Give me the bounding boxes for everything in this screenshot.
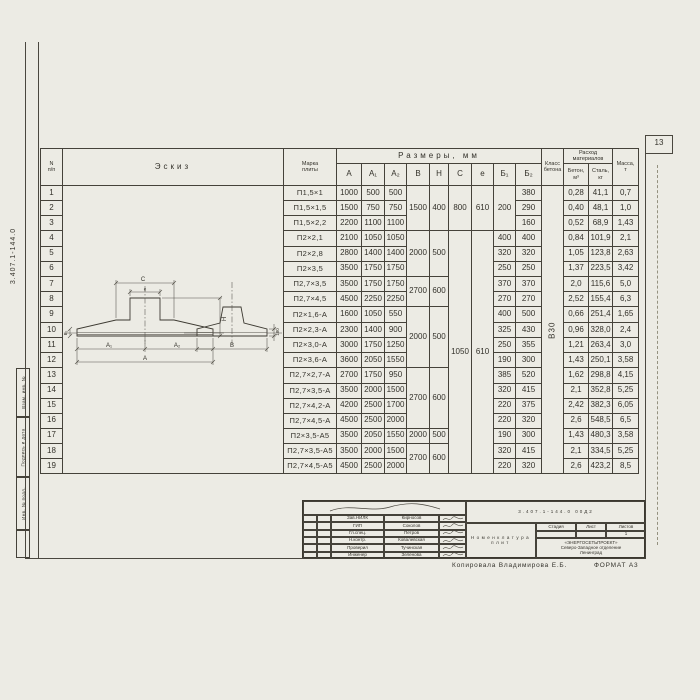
cell-B: 2000 [407, 428, 430, 443]
cell-mass: 3,58 [613, 428, 639, 443]
cell-n: 11 [41, 338, 63, 353]
sig-col-a [303, 537, 317, 544]
copied-by-line: Копировала Владимирова Е.Б. [452, 562, 567, 569]
cell-beton: 2,1 [564, 443, 589, 459]
sig-col-a [303, 522, 317, 529]
cell-A2: 1500 [385, 443, 407, 459]
cell-mass: 1,43 [613, 216, 639, 231]
cell-steel: 334,5 [589, 443, 613, 459]
cell-steel: 155,4 [589, 292, 613, 307]
header-mark: Маркаплиты [284, 149, 337, 186]
cell-steel: 68,9 [589, 216, 613, 231]
person-role: Гл.спец. [331, 530, 384, 537]
cell-beton: 0,84 [564, 231, 589, 247]
cell-A1: 1750 [362, 261, 385, 276]
drawing-sheet: 13 3.407.1-144.0 Взам. инв. № Подпись и … [0, 0, 700, 700]
cell-mass: 5,0 [613, 276, 639, 292]
person-role: Проверил [331, 544, 384, 551]
cell-beton: 1,21 [564, 338, 589, 353]
header-col-A: А [337, 164, 362, 186]
cell-b1: 400 [494, 231, 516, 247]
cell-b2: 400 [516, 231, 542, 247]
cell-steel: 115,6 [589, 276, 613, 292]
dim-label-c: С [141, 277, 146, 283]
frame-line-right [645, 135, 646, 558]
signature-scribble [442, 523, 464, 529]
cell-mark: П2×2,8 [284, 246, 337, 261]
cell-b1: 320 [494, 443, 516, 459]
cell-b1: 190 [494, 353, 516, 368]
person-name: Петров [384, 530, 439, 537]
person-signature [439, 544, 466, 551]
cell-A2: 1400 [385, 246, 407, 261]
stamp-inv-podl: Инв. № подл. [16, 477, 30, 530]
sig-col-a [303, 552, 317, 559]
header-sizes: Размеры, мм [337, 149, 542, 164]
header-concrete: Бетон,м³ [564, 164, 589, 186]
header-col-B: В [407, 164, 430, 186]
cell-n: 5 [41, 246, 63, 261]
sig-col-b [317, 522, 331, 529]
cell-A1: 1750 [362, 276, 385, 292]
sketch-cell: С е А₁ А₂ А Н Б₂ В [63, 186, 284, 474]
cell-n: 13 [41, 368, 63, 384]
cell-b1: 250 [494, 261, 516, 276]
cell-b1: 385 [494, 368, 516, 384]
cell-A1: 1050 [362, 231, 385, 247]
dim-label-a2: А₂ [174, 343, 181, 349]
cell-A2: 1100 [385, 216, 407, 231]
cell-A1: 1100 [362, 216, 385, 231]
person-signature [439, 522, 466, 529]
header-col-b1: Б₁ [494, 164, 516, 186]
person-role: ГИП [331, 522, 384, 529]
person-name: Соколов [384, 522, 439, 529]
sheets-label: Листов [606, 523, 646, 531]
cell-mass: 2,4 [613, 323, 639, 338]
table-body: 1 С е А₁ А₂ А Н Б₂ [41, 186, 639, 474]
cell-A: 3500 [337, 383, 362, 398]
header-class: Классбетона [542, 149, 564, 186]
cell-H: 500 [430, 231, 449, 277]
cell-A2: 2000 [385, 459, 407, 474]
header-col-C: С [449, 164, 472, 186]
signature-scribble [442, 530, 464, 536]
cell-A2: 2250 [385, 292, 407, 307]
project-title: Номенклатура плит [466, 523, 536, 559]
cell-beton: 2,6 [564, 459, 589, 474]
cell-b2: 300 [516, 428, 542, 443]
cell-beton: 0,52 [564, 216, 589, 231]
cell-b1: 325 [494, 323, 516, 338]
sig-col-b [317, 544, 331, 551]
concrete-class: В30 [548, 321, 556, 338]
stamp-label: Подпись и дата [21, 428, 26, 466]
cell-b2: 520 [516, 368, 542, 384]
signature-scribble [442, 538, 464, 544]
cell-steel: 250,1 [589, 353, 613, 368]
signature-flourish [325, 502, 445, 514]
cell-b2: 270 [516, 292, 542, 307]
person-signature [439, 515, 466, 522]
cell-beton: 1,43 [564, 353, 589, 368]
cell-mass: 8,5 [613, 459, 639, 474]
cell-A: 4500 [337, 292, 362, 307]
cell-steel: 263,4 [589, 338, 613, 353]
cell-A1: 1750 [362, 338, 385, 353]
dim-label-180: 180 [275, 328, 280, 336]
header-consumption: Расходматериалов [564, 149, 613, 164]
cell-A2: 1550 [385, 353, 407, 368]
cell-b2: 415 [516, 383, 542, 398]
cell-beton: 2,0 [564, 276, 589, 292]
format-label: ФОРМАТ А3 [594, 562, 638, 569]
cell-mark: П2,7×4,5-А5 [284, 459, 337, 474]
cell-mark: П2×2,3-А [284, 323, 337, 338]
cell-n: 14 [41, 383, 63, 398]
signature-scribble [442, 552, 464, 558]
cell-H: 400 [430, 186, 449, 231]
sig-col-b [317, 537, 331, 544]
cell-n: 17 [41, 428, 63, 443]
header-col-H: Н [430, 164, 449, 186]
cell-A1: 2500 [362, 413, 385, 428]
cell-n: 15 [41, 398, 63, 413]
cell-steel: 480,3 [589, 428, 613, 443]
stage-value [536, 531, 576, 538]
person-role: Н.контр. [331, 537, 384, 544]
cell-A1: 2050 [362, 353, 385, 368]
cell-H: 500 [430, 428, 449, 443]
stamp-label: Взам. инв. № [21, 376, 26, 409]
cell-A1: 1400 [362, 246, 385, 261]
cell-mass: 6,05 [613, 398, 639, 413]
cell-steel: 298,8 [589, 368, 613, 384]
cell-n: 18 [41, 443, 63, 459]
cell-e: 610 [472, 186, 494, 231]
cell-b2: 500 [516, 307, 542, 323]
page-number-box-bottom [645, 153, 673, 154]
cell-B: 2000 [407, 307, 430, 368]
cell-A: 3000 [337, 338, 362, 353]
cell-A: 3500 [337, 428, 362, 443]
person-role: Инженер [331, 552, 384, 559]
cell-mark: П1,5×1,5 [284, 201, 337, 216]
cell-A2: 1550 [385, 428, 407, 443]
sig-col-b [317, 530, 331, 537]
cell-n: 9 [41, 307, 63, 323]
cell-b2: 320 [516, 246, 542, 261]
cell-A1: 2500 [362, 459, 385, 474]
sig-col-b [317, 515, 331, 522]
cell-mass: 6,5 [613, 413, 639, 428]
cell-e: 610 [472, 231, 494, 474]
cell-A2: 1750 [385, 261, 407, 276]
person-signature [439, 552, 466, 559]
cell-b2: 375 [516, 398, 542, 413]
cell-beton: 0,40 [564, 201, 589, 216]
cell-b1: 320 [494, 383, 516, 398]
cell-C: 800 [449, 186, 472, 231]
cell-A1: 1050 [362, 307, 385, 323]
cell-b1: 220 [494, 459, 516, 474]
cell-A2: 750 [385, 201, 407, 216]
header-col-e: е [472, 164, 494, 186]
cell-b2: 250 [516, 261, 542, 276]
cell-beton: 0,96 [564, 323, 589, 338]
stage-label: Стадия [536, 523, 576, 531]
cell-b2: 415 [516, 443, 542, 459]
header-sketch: Эскиз [63, 149, 284, 186]
person-name: Зеленова [384, 552, 439, 559]
cell-A2: 2000 [385, 413, 407, 428]
cell-beton: 2,42 [564, 398, 589, 413]
header-steel: Сталь,кг [589, 164, 613, 186]
cell-mark: П2×3,6-А [284, 353, 337, 368]
cell-b2: 430 [516, 323, 542, 338]
dim-label-e: е [144, 287, 147, 292]
cell-beton: 1,62 [564, 368, 589, 384]
dim-label-b: В [230, 343, 234, 349]
cell-n: 3 [41, 216, 63, 231]
cell-b1: 250 [494, 338, 516, 353]
cell-A2: 950 [385, 368, 407, 384]
stamp-vzam-inv: Взам. инв. № [16, 368, 30, 417]
cell-beton: 1,37 [564, 261, 589, 276]
cell-A1: 1750 [362, 368, 385, 384]
cell-steel: 101,9 [589, 231, 613, 247]
cell-mark: П2×3,0-А [284, 338, 337, 353]
cell-A1: 2000 [362, 383, 385, 398]
cell-A2: 500 [385, 186, 407, 201]
cell-n: 10 [41, 323, 63, 338]
cell-b2: 380 [516, 186, 542, 201]
cell-B: 2700 [407, 443, 430, 474]
cell-A: 1500 [337, 201, 362, 216]
cell-B: 2000 [407, 231, 430, 277]
title-block-empty-strip [303, 501, 466, 515]
cell-n: 8 [41, 292, 63, 307]
sheets-value: 1 [606, 531, 646, 538]
cell-b2: 160 [516, 216, 542, 231]
cell-beton: 2,52 [564, 292, 589, 307]
cell-A: 2100 [337, 231, 362, 247]
cell-mass: 2,63 [613, 246, 639, 261]
cell-A: 3500 [337, 276, 362, 292]
cell-A1: 1400 [362, 323, 385, 338]
cell-beton: 0,28 [564, 186, 589, 201]
cell-mass: 2,1 [613, 231, 639, 247]
dim-label-edge: Б₂ [64, 330, 68, 335]
cell-A1: 2050 [362, 428, 385, 443]
cell-A1: 2500 [362, 398, 385, 413]
cell-A2: 1750 [385, 276, 407, 292]
cell-steel: 423,2 [589, 459, 613, 474]
cell-steel: 223,5 [589, 261, 613, 276]
cell-A: 3600 [337, 353, 362, 368]
cell-A: 1600 [337, 307, 362, 323]
nomenclature-table: Nп/п Эскиз Маркаплиты Размеры, мм Классб… [40, 148, 639, 474]
cell-H: 500 [430, 307, 449, 368]
cell-mark: П2,7×4,5 [284, 292, 337, 307]
cell-beton: 2,1 [564, 383, 589, 398]
cell-steel: 352,8 [589, 383, 613, 398]
cell-A: 1000 [337, 186, 362, 201]
cell-mass: 5,25 [613, 443, 639, 459]
stamp-label: Инв. № подл. [21, 487, 26, 520]
cell-n: 7 [41, 276, 63, 292]
cell-steel: 123,8 [589, 246, 613, 261]
cell-b1: 320 [494, 246, 516, 261]
cell-C: 1050 [449, 231, 472, 474]
cell-mark: П2,7×3,5 [284, 276, 337, 292]
cell-A2: 1250 [385, 338, 407, 353]
page-number: 13 [646, 138, 672, 153]
cell-beton: 1,05 [564, 246, 589, 261]
sheet-label: Лист [576, 523, 606, 531]
cell-mass: 6,3 [613, 292, 639, 307]
fold-mark-line [657, 165, 658, 545]
page-number-box-top [645, 135, 673, 136]
cell-b2: 370 [516, 276, 542, 292]
table-header: Nп/п Эскиз Маркаплиты Размеры, мм Классб… [41, 149, 639, 186]
person-signature [439, 537, 466, 544]
dim-label-a: А [143, 356, 147, 362]
organization: «ЭНЕРГОСЕТЬПРОЕКТ» Северо-Западное отдел… [536, 538, 646, 559]
cell-A2: 1500 [385, 383, 407, 398]
header-num: Nп/п [41, 149, 63, 186]
cell-mass: 5,25 [613, 383, 639, 398]
cell-A: 3500 [337, 261, 362, 276]
cell-B: 2700 [407, 276, 430, 307]
cell-steel: 328,0 [589, 323, 613, 338]
title-block: Зав.НИЛККирносовГИПСоколовГл.спец.Петров… [302, 500, 645, 558]
cell-mark: П2,7×2,7-А [284, 368, 337, 384]
cell-A: 2300 [337, 323, 362, 338]
cell-A2: 1050 [385, 231, 407, 247]
cell-mass: 0,7 [613, 186, 639, 201]
cell-n: 16 [41, 413, 63, 428]
cell-mass: 3,0 [613, 338, 639, 353]
table-row: 1 С е А₁ А₂ А Н Б₂ [41, 186, 639, 201]
stamp-podpis-data: Подпись и дата [16, 417, 30, 477]
organization-city: Ленинград [580, 551, 602, 556]
cell-mark: П2,7×4,2-А [284, 398, 337, 413]
cell-A2: 900 [385, 323, 407, 338]
cell-A: 4200 [337, 398, 362, 413]
sig-col-a [303, 530, 317, 537]
cell-A2: 1700 [385, 398, 407, 413]
cell-b2: 355 [516, 338, 542, 353]
sig-col-a [303, 515, 317, 522]
cell-b1: 220 [494, 398, 516, 413]
cell-beton: 1,43 [564, 428, 589, 443]
cell-A1: 750 [362, 201, 385, 216]
cell-A: 3500 [337, 443, 362, 459]
cell-mark: П1,5×2,2 [284, 216, 337, 231]
cell-A2: 550 [385, 307, 407, 323]
dim-label-a1: А₁ [106, 343, 112, 349]
cell-b2: 320 [516, 413, 542, 428]
cell-mark: П2,7×3,5-А [284, 383, 337, 398]
document-number: 3.407.1-144.0 00Д2 [466, 501, 646, 523]
cell-mass: 3,58 [613, 353, 639, 368]
cell-A1: 2250 [362, 292, 385, 307]
cell-A: 4500 [337, 459, 362, 474]
cell-beton: 0,66 [564, 307, 589, 323]
cell-A1: 2000 [362, 443, 385, 459]
cell-b1: 370 [494, 276, 516, 292]
cell-B: 2700 [407, 368, 430, 429]
cell-mark: П2,7×4,5-А [284, 413, 337, 428]
cell-B: 1500 [407, 186, 430, 231]
plate-sketch: С е А₁ А₂ А Н Б₂ В [64, 186, 282, 471]
header-mass: Масса,т [613, 149, 639, 186]
cell-n: 4 [41, 231, 63, 247]
cell-b1: 200 [494, 186, 516, 231]
cell-n: 19 [41, 459, 63, 474]
cell-mass: 1,65 [613, 307, 639, 323]
cell-A: 2200 [337, 216, 362, 231]
cell-steel: 48,1 [589, 201, 613, 216]
person-signature [439, 530, 466, 537]
cell-mark: П2×3,5-А5 [284, 428, 337, 443]
header-col-A2: А₂ [385, 164, 407, 186]
cell-H: 600 [430, 276, 449, 307]
cell-b2: 320 [516, 459, 542, 474]
cell-A1: 500 [362, 186, 385, 201]
cell-steel: 548,5 [589, 413, 613, 428]
cell-n: 1 [41, 186, 63, 201]
cell-b1: 220 [494, 413, 516, 428]
sig-col-b [317, 552, 331, 559]
cell-mark: П2×3,5 [284, 261, 337, 276]
cell-cls: В30 [542, 186, 564, 474]
signature-scribble [442, 516, 464, 522]
page-number-box-right [672, 135, 673, 154]
signature-scribble [442, 545, 464, 551]
cell-mark: П2×2,1 [284, 231, 337, 247]
dim-label-h: Н [222, 317, 228, 321]
cell-beton: 2,6 [564, 413, 589, 428]
sig-col-a [303, 544, 317, 551]
cell-H: 600 [430, 443, 449, 474]
stamp-empty [16, 530, 30, 558]
cell-mass: 3,42 [613, 261, 639, 276]
cell-mass: 1,0 [613, 201, 639, 216]
cell-A: 2700 [337, 368, 362, 384]
frame-line-left-inner [38, 42, 39, 558]
cell-n: 2 [41, 201, 63, 216]
project-title-line2: плит [491, 541, 511, 546]
cell-A: 2800 [337, 246, 362, 261]
cell-b1: 190 [494, 428, 516, 443]
cell-n: 12 [41, 353, 63, 368]
sheet-value [576, 531, 606, 538]
cell-b2: 290 [516, 201, 542, 216]
cell-mark: П2,7×3,5-А5 [284, 443, 337, 459]
cell-steel: 251,4 [589, 307, 613, 323]
cell-b1: 270 [494, 292, 516, 307]
side-document-code: 3.407.1-144.0 [10, 206, 22, 306]
header-col-A1: А₁ [362, 164, 385, 186]
cell-mark: П1,5×1 [284, 186, 337, 201]
header-col-b2: Б₂ [516, 164, 542, 186]
cell-mark: П2×1,6-А [284, 307, 337, 323]
cell-mass: 4,15 [613, 368, 639, 384]
person-role: Зав.НИЛК [331, 515, 384, 522]
cell-b2: 300 [516, 353, 542, 368]
